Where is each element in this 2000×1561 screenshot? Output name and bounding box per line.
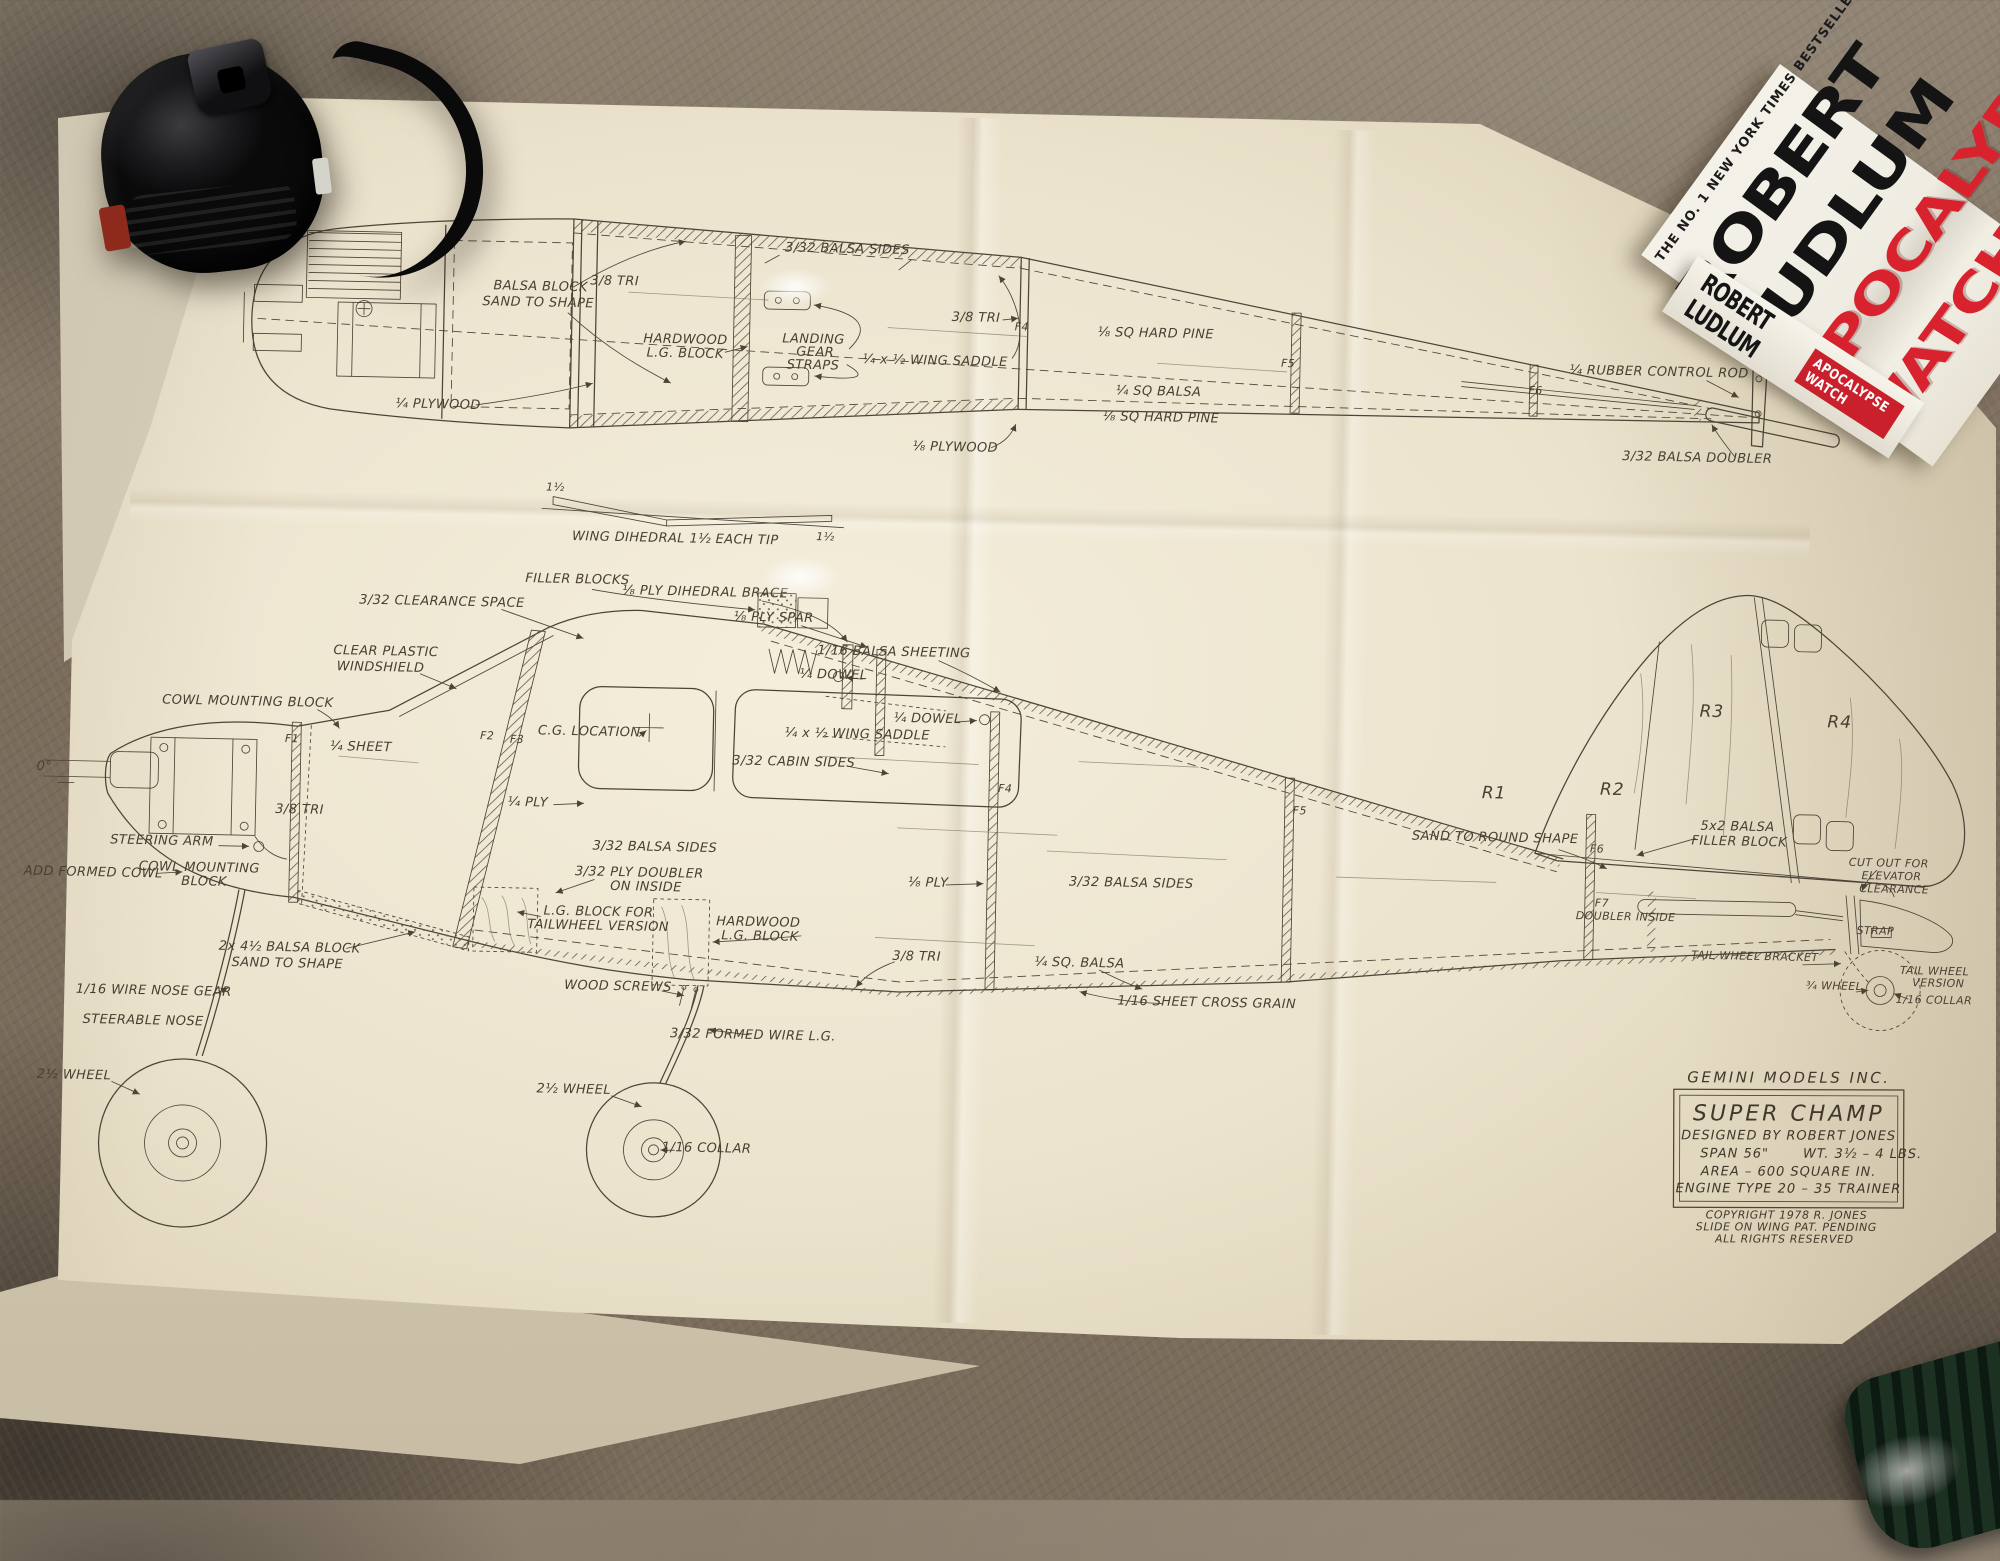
plan-label: L.G. BLOCK (646, 346, 725, 363)
plan-label: 3/8 TRI (892, 949, 941, 965)
plan-label: 3/32 BALSA DOUBLER (1622, 449, 1772, 467)
plan-label: TAILWHEEL VERSION (527, 917, 669, 935)
title-block: GEMINI MODELS INC. SUPER CHAMP DESIGNED … (1673, 1068, 1922, 1246)
plan-label: ⅛ PLYWOOD (912, 439, 998, 456)
plan-label: FILLER BLOCK (1691, 834, 1788, 851)
dihedral-tip-left: 1½ (546, 480, 565, 493)
plan-label: 3/32 BALSA SIDES (592, 839, 717, 857)
plan-label: ¼ PLY (507, 795, 548, 811)
plan-label: DOUBLER INSIDE (1576, 909, 1676, 924)
plan-label: 5x2 BALSA (1700, 819, 1774, 836)
plan-label: 3/32 BALSA SIDES (785, 240, 910, 258)
plan-label: ON INSIDE (610, 879, 682, 896)
plan-label: 3/8 TRI (952, 310, 1001, 326)
copyright-line: ALL RIGHTS RESERVED (1714, 1232, 1854, 1245)
wing-dihedral-diagram: WING DIHEDRAL 1½ EACH TIP 1½ 1½ (541, 480, 844, 549)
designer-line: DESIGNED BY ROBERT JONES (1681, 1128, 1896, 1144)
plan-label: 1/16 WIRE NOSE GEAR (76, 982, 232, 1000)
paper-glare (758, 268, 832, 306)
plan-label: ⅛ PLY (908, 875, 949, 891)
former-label: F6 (1528, 384, 1542, 397)
plan-label: CLEAR PLASTIC (333, 643, 439, 660)
model-name: SUPER CHAMP (1693, 1101, 1885, 1127)
plan-label: ¼ DOWEL (893, 711, 961, 727)
former-label: F7 (1595, 897, 1609, 910)
plan-label: 3/8 TRI (275, 802, 324, 818)
plan-label: ¼ x ½ WING SADDLE (862, 352, 1008, 370)
plan-label: 1/16 SHEET CROSS GRAIN (1117, 994, 1296, 1013)
plan-label: 2½ WHEEL (37, 1067, 112, 1084)
rudder-part-label: R3 (1699, 702, 1724, 723)
rudder-part-label: R1 (1482, 783, 1507, 804)
dihedral-caption: WING DIHEDRAL 1½ EACH TIP (572, 529, 779, 548)
engine-value: ENGINE TYPE 20 – 35 TRAINER (1676, 1181, 1902, 1197)
plan-label: COWL MOUNTING BLOCK (162, 692, 334, 711)
former-label: F4 (1015, 320, 1029, 333)
plan-label: ELEVATOR (1861, 869, 1921, 883)
plan-label: 3/32 CLEARANCE SPACE (359, 593, 525, 611)
company-name: GEMINI MODELS INC. (1687, 1068, 1890, 1087)
plan-label: WINDSHIELD (337, 659, 425, 676)
weight-value: WT. 3½ – 4 LBS. (1803, 1147, 1922, 1162)
plan-label: ¼ SHEET (330, 739, 393, 755)
tape-measure (96, 38, 516, 308)
plan-label: 2½ WHEEL (536, 1081, 611, 1098)
plan-label: WOOD SCREWS (564, 978, 672, 995)
rudder-part-label: R4 (1827, 712, 1852, 733)
plan-label: STRAPS (787, 357, 840, 373)
plan-label: C.G. LOCATION (538, 723, 641, 740)
dihedral-tip-right: 1½ (816, 530, 835, 543)
plan-label: ⅛ SQ HARD PINE (1097, 325, 1214, 342)
plan-label: 1/16 BALSA SHEETING (817, 643, 971, 661)
plan-label: 1/16 COLLAR (662, 1140, 752, 1157)
plan-label: ¼ PLYWOOD (395, 396, 481, 413)
plan-label: STRAP (1856, 924, 1894, 938)
plan-label: FILLER BLOCKS (525, 571, 630, 588)
plan-label: L.G. BLOCK (721, 928, 800, 945)
top-view-labels: 3/32 BALSA SIDES BALSA BLOCK SAND TO SHA… (395, 232, 1777, 472)
plan-label: CUT OUT FOR (1849, 856, 1929, 871)
plan-label: 3/8 TRI (590, 273, 639, 289)
plan-label: 3/32 CABIN SIDES (732, 753, 855, 771)
plan-label: TAIL WHEEL BRACKET (1691, 949, 1819, 965)
plan-label: ⅛ PLY SPAR (734, 609, 814, 626)
plan-label: ¼ DOWEL (799, 667, 867, 683)
plan-label: STEERING ARM (110, 832, 214, 849)
belt-clip-slot (216, 65, 246, 94)
plan-label: STEERABLE NOSE (82, 1012, 204, 1030)
plan-label: SAND TO ROUND SHAPE (1412, 829, 1579, 847)
plan-label: 0° (36, 759, 52, 774)
plan-label: ¼ SQ. BALSA (1034, 955, 1124, 972)
rudder-part-label: R2 (1600, 780, 1625, 801)
former-label: F4 (998, 782, 1012, 795)
plan-label: ¾ WHEEL (1806, 979, 1862, 993)
plan-label: 1/16 COLLAR (1896, 993, 1973, 1008)
area-value: AREA – 600 SQUARE IN. (1700, 1164, 1877, 1180)
former-label: F6 (1590, 842, 1604, 855)
former-label: F5 (1281, 357, 1295, 370)
plan-label: VERSION (1912, 976, 1964, 990)
plan-label: 2x 4½ BALSA BLOCK (219, 939, 362, 957)
plan-label: CLEARANCE (1859, 882, 1929, 896)
plan-label: ¼ x ½ WING SADDLE (784, 725, 930, 743)
plan-label: BLOCK (181, 874, 228, 890)
plan-label: 3/32 BALSA SIDES (1069, 874, 1194, 892)
plan-label: ⅛ SQ HARD PINE (1103, 409, 1220, 426)
former-label: F1 (285, 732, 299, 745)
former-label: F5 (1293, 804, 1307, 817)
span-value: SPAN 56" (1700, 1146, 1769, 1161)
plan-label: 3/32 FORMED WIRE L.G. (670, 1026, 836, 1044)
plan-label: SAND TO SHAPE (231, 955, 343, 972)
former-label: F2 (480, 729, 494, 742)
former-label: F3 (510, 733, 524, 746)
plan-label: ¼ SQ BALSA (1116, 383, 1202, 400)
paper-glare (760, 556, 842, 598)
